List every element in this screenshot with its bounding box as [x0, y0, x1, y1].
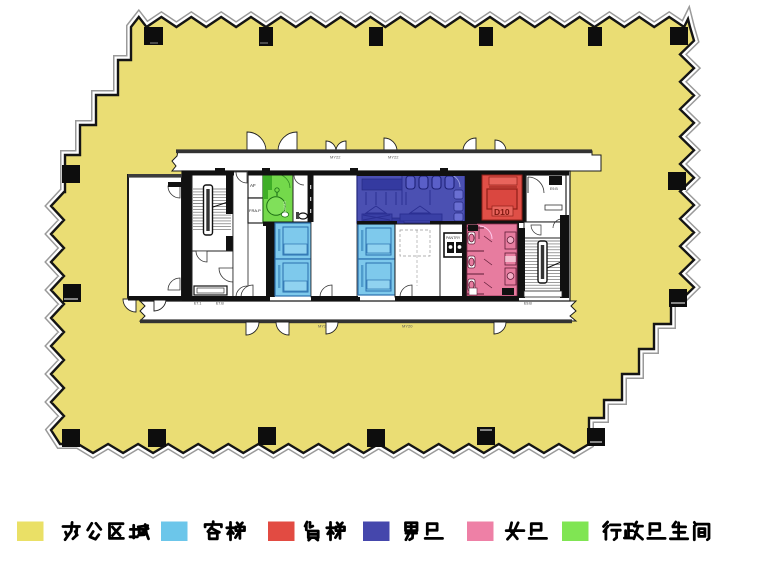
svg-text:PANTRY: PANTRY: [446, 236, 461, 240]
svg-text:D10: D10: [494, 207, 510, 217]
svg-text:MY22: MY22: [388, 155, 399, 160]
svg-text:MY20: MY20: [402, 324, 413, 329]
svg-text:E7.B: E7.B: [216, 302, 224, 306]
svg-text:E7.1: E7.1: [194, 302, 201, 306]
svg-text:MY22: MY22: [330, 155, 341, 160]
svg-text:E9.B: E9.B: [524, 302, 532, 306]
svg-text:AF: AF: [250, 183, 256, 188]
svg-text:E9.B: E9.B: [550, 187, 558, 191]
svg-text:FRA.P: FRA.P: [249, 208, 261, 213]
svg-text:D#M3: D#M3: [282, 201, 287, 212]
